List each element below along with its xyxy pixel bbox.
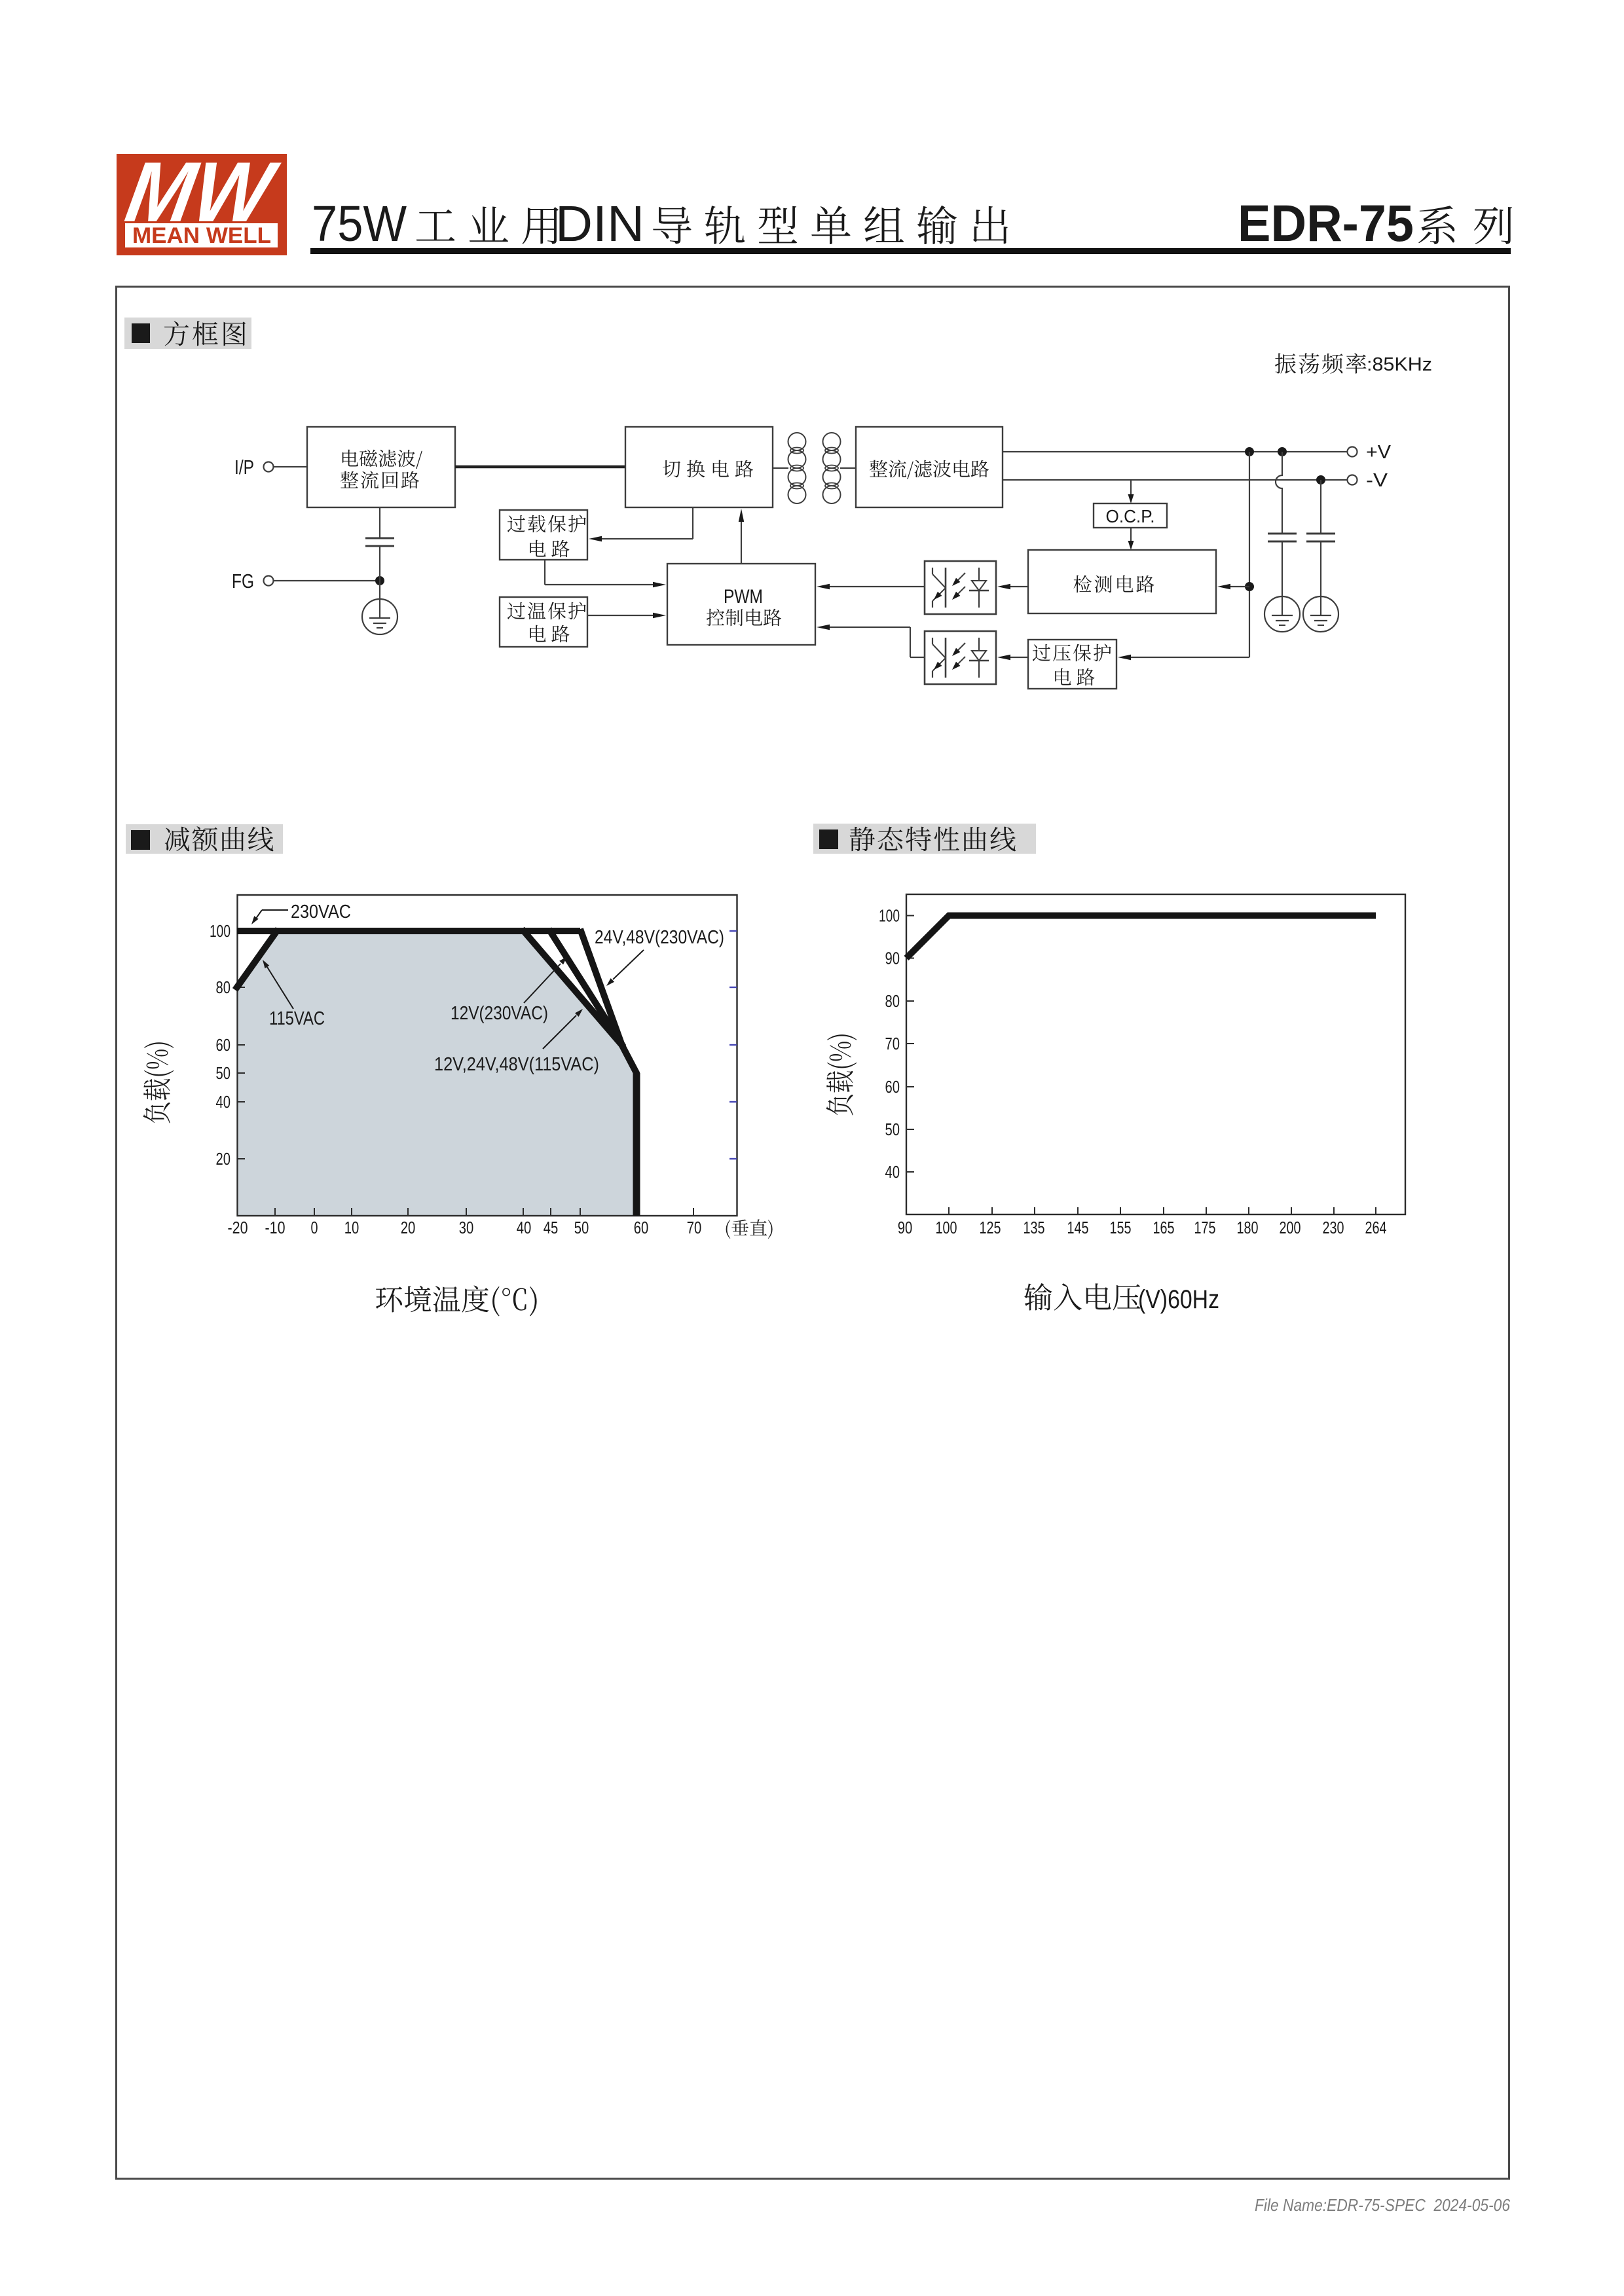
svg-text:DIN: DIN	[555, 196, 644, 252]
svg-text:PWM: PWM	[724, 586, 763, 608]
svg-text:(V)60Hz: (V)60Hz	[1138, 1285, 1219, 1314]
svg-text:100: 100	[210, 921, 231, 941]
svg-text:60: 60	[885, 1077, 900, 1097]
svg-text:125: 125	[980, 1218, 1001, 1237]
svg-text:175: 175	[1194, 1218, 1216, 1237]
svg-text:60: 60	[634, 1218, 649, 1237]
svg-text:-20: -20	[228, 1218, 248, 1237]
svg-text:100: 100	[879, 906, 900, 926]
svg-text:145: 145	[1067, 1218, 1089, 1237]
svg-text:264: 264	[1365, 1218, 1387, 1237]
svg-text:40: 40	[885, 1162, 900, 1182]
svg-text:50: 50	[216, 1063, 231, 1083]
svg-text:File Name:EDR-75-SPEC 2024-05: File Name:EDR-75-SPEC 2024-05-06	[1255, 2195, 1510, 2215]
svg-text:O.C.P.: O.C.P.	[1106, 506, 1155, 526]
svg-text:80: 80	[216, 977, 231, 997]
svg-text:70: 70	[885, 1034, 900, 1053]
svg-text:10: 10	[344, 1218, 360, 1237]
svg-text:70: 70	[687, 1218, 702, 1237]
svg-text:0: 0	[311, 1218, 318, 1237]
svg-text:-V: -V	[1366, 470, 1388, 491]
svg-text:20: 20	[401, 1218, 416, 1237]
svg-text:115VAC: 115VAC	[269, 1008, 325, 1029]
svg-text:30: 30	[459, 1218, 474, 1237]
svg-text:-10: -10	[265, 1218, 286, 1237]
svg-text:90: 90	[898, 1218, 913, 1237]
svg-text:40: 40	[517, 1218, 532, 1237]
svg-text:180: 180	[1237, 1218, 1259, 1237]
svg-text:165: 165	[1153, 1218, 1175, 1237]
svg-text:60: 60	[216, 1035, 231, 1055]
svg-text:200: 200	[1280, 1218, 1301, 1237]
svg-text:12V,24V,48V(115VAC): 12V,24V,48V(115VAC)	[434, 1054, 599, 1075]
svg-text:MEAN WELL: MEAN WELL	[132, 223, 271, 248]
svg-text:100: 100	[936, 1218, 957, 1237]
svg-text:EDR-75: EDR-75	[1238, 194, 1414, 252]
svg-text:80: 80	[885, 991, 900, 1011]
svg-text:40: 40	[216, 1092, 231, 1112]
svg-text:230VAC: 230VAC	[291, 902, 351, 922]
svg-text:+V: +V	[1366, 442, 1392, 463]
svg-text::85KHz: :85KHz	[1367, 354, 1432, 375]
svg-text:50: 50	[574, 1218, 589, 1237]
svg-text:I/P: I/P	[234, 456, 254, 479]
svg-text:135: 135	[1024, 1218, 1045, 1237]
svg-text:FG: FG	[232, 570, 254, 592]
svg-text:20: 20	[216, 1149, 231, 1169]
svg-text:90: 90	[885, 949, 900, 968]
svg-text:230: 230	[1323, 1218, 1344, 1237]
svg-text:45: 45	[544, 1218, 559, 1237]
svg-text:155: 155	[1110, 1218, 1132, 1237]
svg-text:24V,48V(230VAC): 24V,48V(230VAC)	[595, 927, 724, 948]
svg-text:75W: 75W	[312, 196, 407, 252]
svg-text:12V(230VAC): 12V(230VAC)	[451, 1003, 548, 1024]
svg-text:50: 50	[885, 1120, 900, 1139]
